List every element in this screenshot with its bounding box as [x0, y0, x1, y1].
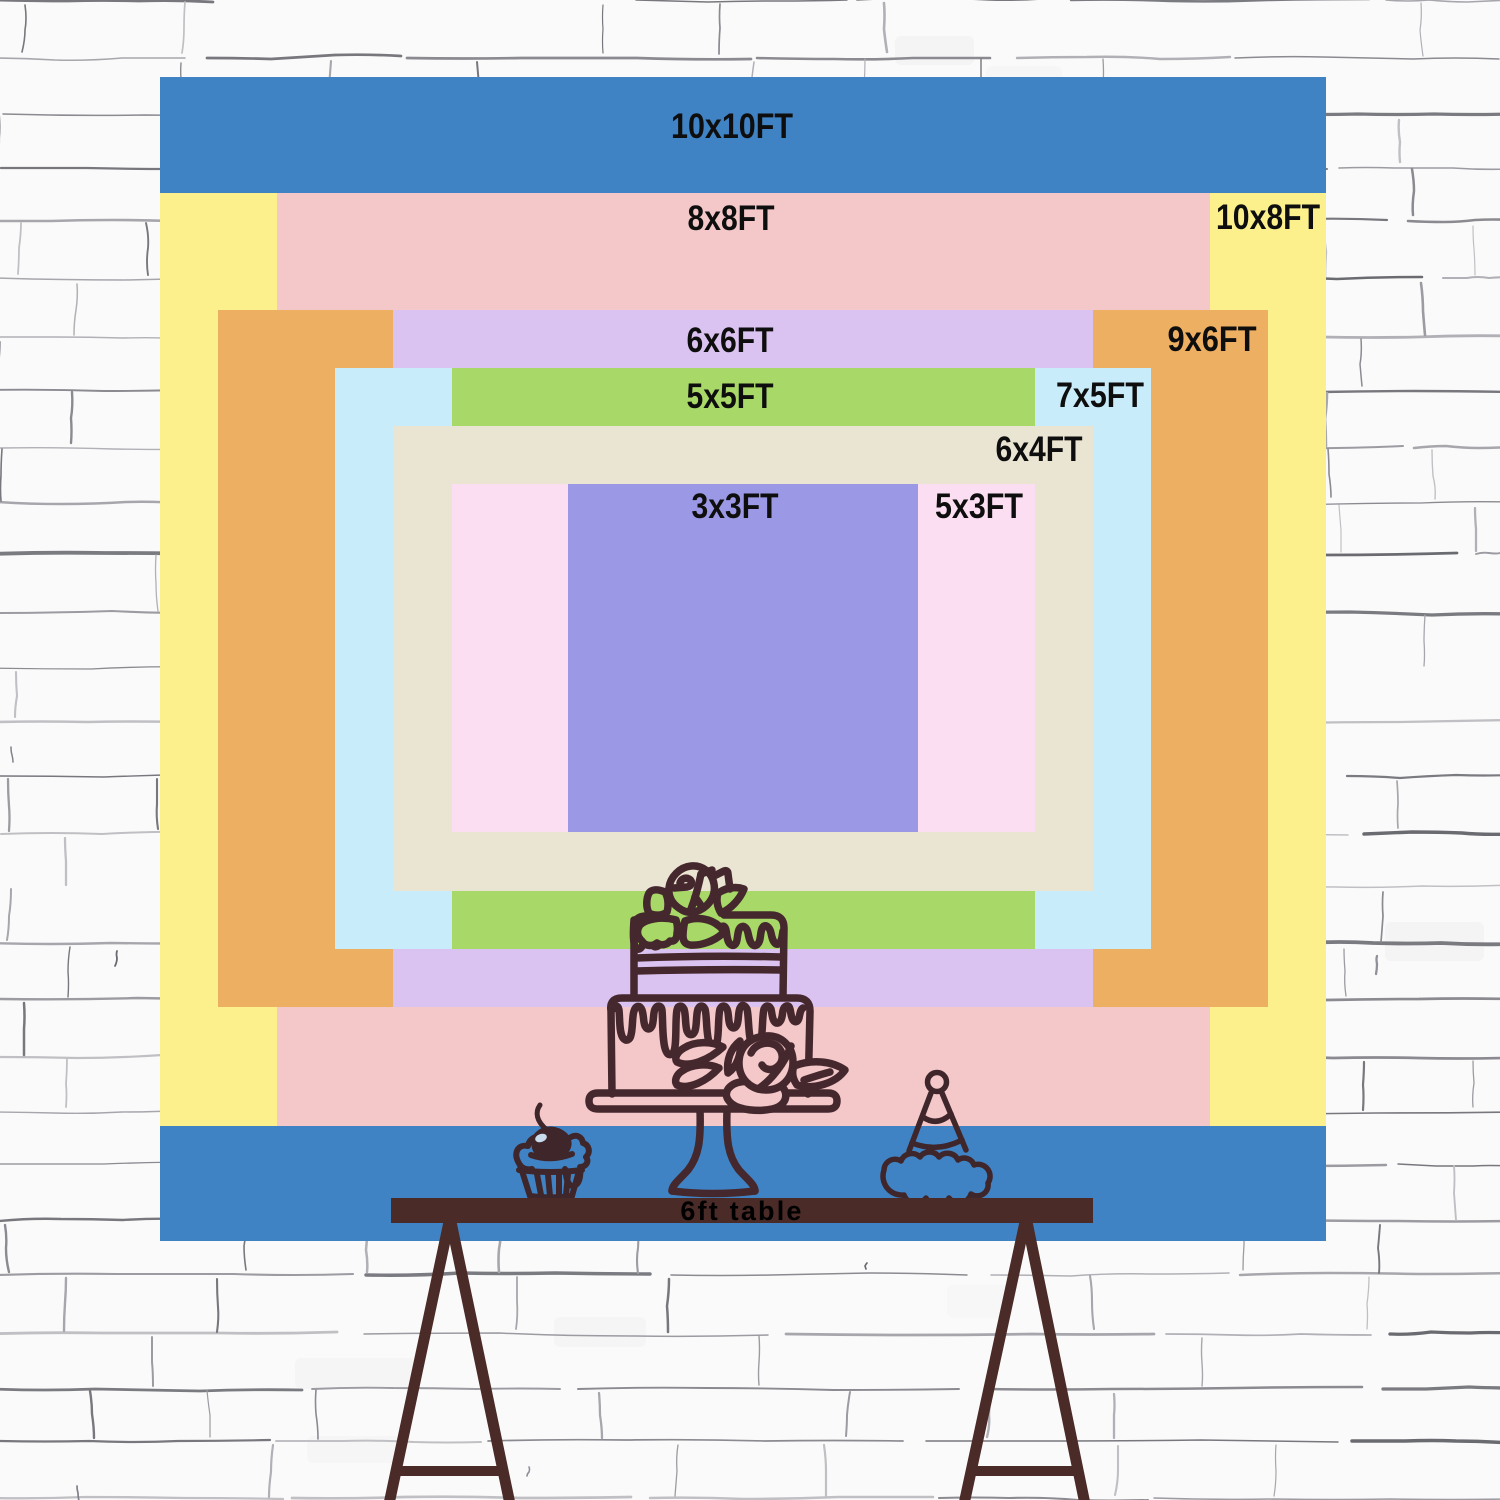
svg-text:8x8FT: 8x8FT — [688, 199, 775, 238]
svg-text:7x5FT: 7x5FT — [1056, 376, 1144, 415]
svg-text:6ft table: 6ft table — [680, 1196, 803, 1226]
svg-text:3x3FT: 3x3FT — [692, 487, 779, 526]
svg-text:6x6FT: 6x6FT — [687, 321, 774, 360]
svg-text:5x5FT: 5x5FT — [687, 377, 774, 416]
svg-text:5x3FT: 5x3FT — [935, 487, 1023, 526]
svg-text:9x6FT: 9x6FT — [1168, 320, 1257, 359]
svg-text:10x8FT: 10x8FT — [1216, 198, 1320, 237]
svg-text:6x4FT: 6x4FT — [996, 430, 1083, 469]
svg-text:10x10FT: 10x10FT — [671, 107, 793, 146]
